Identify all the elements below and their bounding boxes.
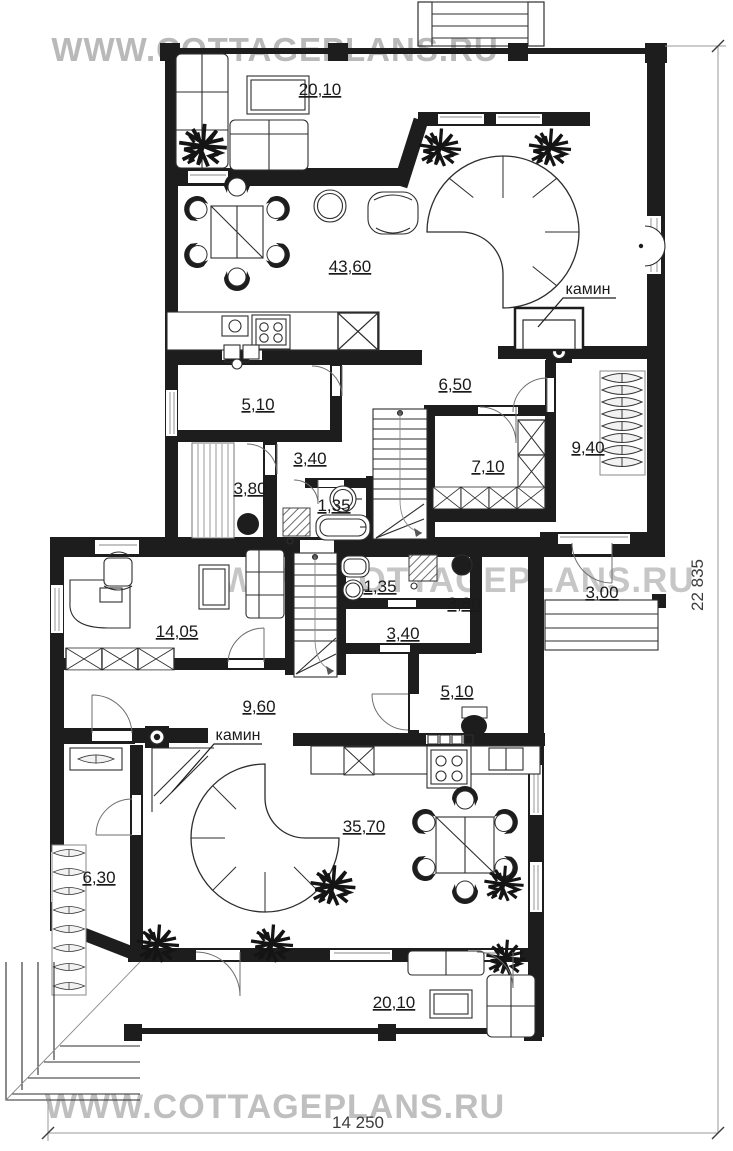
dining-table-upper xyxy=(179,173,294,291)
room-label-hall-lower: 9,60 xyxy=(242,697,275,716)
room-label-terrace-top: 20,10 xyxy=(299,80,342,99)
room-label-wc-lower: 1,35 xyxy=(363,577,396,596)
dimension-width-label: 14 250 xyxy=(332,1113,384,1132)
plant-icon xyxy=(419,129,461,167)
dining-table-lower xyxy=(407,786,522,904)
plant-icon xyxy=(529,129,571,167)
floor-plan-page: WWW.COTTAGEPLANS.RU WWW.COTTAGEPLANS.RU … xyxy=(0,0,733,1151)
room-label-corridor-upper: 3,40 xyxy=(293,449,326,468)
room-label-wardrobe-lower: 6,30 xyxy=(82,868,115,887)
sauna-stove-icon xyxy=(237,513,259,535)
stairs-lower xyxy=(294,553,337,677)
room-label-terrace-bottom: 20,10 xyxy=(373,993,416,1012)
room-label-study: 14,05 xyxy=(156,622,199,641)
stairs-upper xyxy=(373,409,427,539)
room-label-wc-upper: 1,35 xyxy=(317,496,350,515)
ottoman-icon xyxy=(314,190,346,222)
plant-icon xyxy=(484,866,523,901)
wardrobe-940-hangers xyxy=(600,371,645,475)
sectional-sofa-upper xyxy=(427,156,579,308)
room-label-wardrobe-upper: 7,10 xyxy=(471,457,504,476)
study-furniture xyxy=(66,550,284,670)
armchair-icon xyxy=(368,192,418,234)
fireplace-lower-label: камин xyxy=(215,727,260,744)
room-label-room-lower: 5,10 xyxy=(440,682,473,701)
dimension-height-label: 22 835 xyxy=(688,559,707,611)
floor-plan-drawing: WWW.COTTAGEPLANS.RU WWW.COTTAGEPLANS.RU … xyxy=(0,0,733,1151)
porch-steps-right xyxy=(545,600,658,650)
fireplace-upper-label: камин xyxy=(565,281,610,298)
room-label-living-dining: 43,60 xyxy=(329,257,372,276)
sauna-stove-lower-icon xyxy=(452,555,472,575)
room-label-porch-right: 3,00 xyxy=(585,583,618,602)
toilet-icon xyxy=(461,707,487,737)
room-label-bedroom-right: 9,40 xyxy=(571,438,604,457)
room-label-living-lower: 35,70 xyxy=(343,817,386,836)
room-label-hall-upper: 6,50 xyxy=(438,375,471,394)
shower-tray-icon xyxy=(283,508,310,536)
room-label-corridor-lower: 3,40 xyxy=(386,624,419,643)
room-label-room-upper: 5,10 xyxy=(241,395,274,414)
room-label-sauna-lower: 3,80 xyxy=(447,594,480,613)
room-label-sauna-upper: 3,80 xyxy=(233,479,266,498)
